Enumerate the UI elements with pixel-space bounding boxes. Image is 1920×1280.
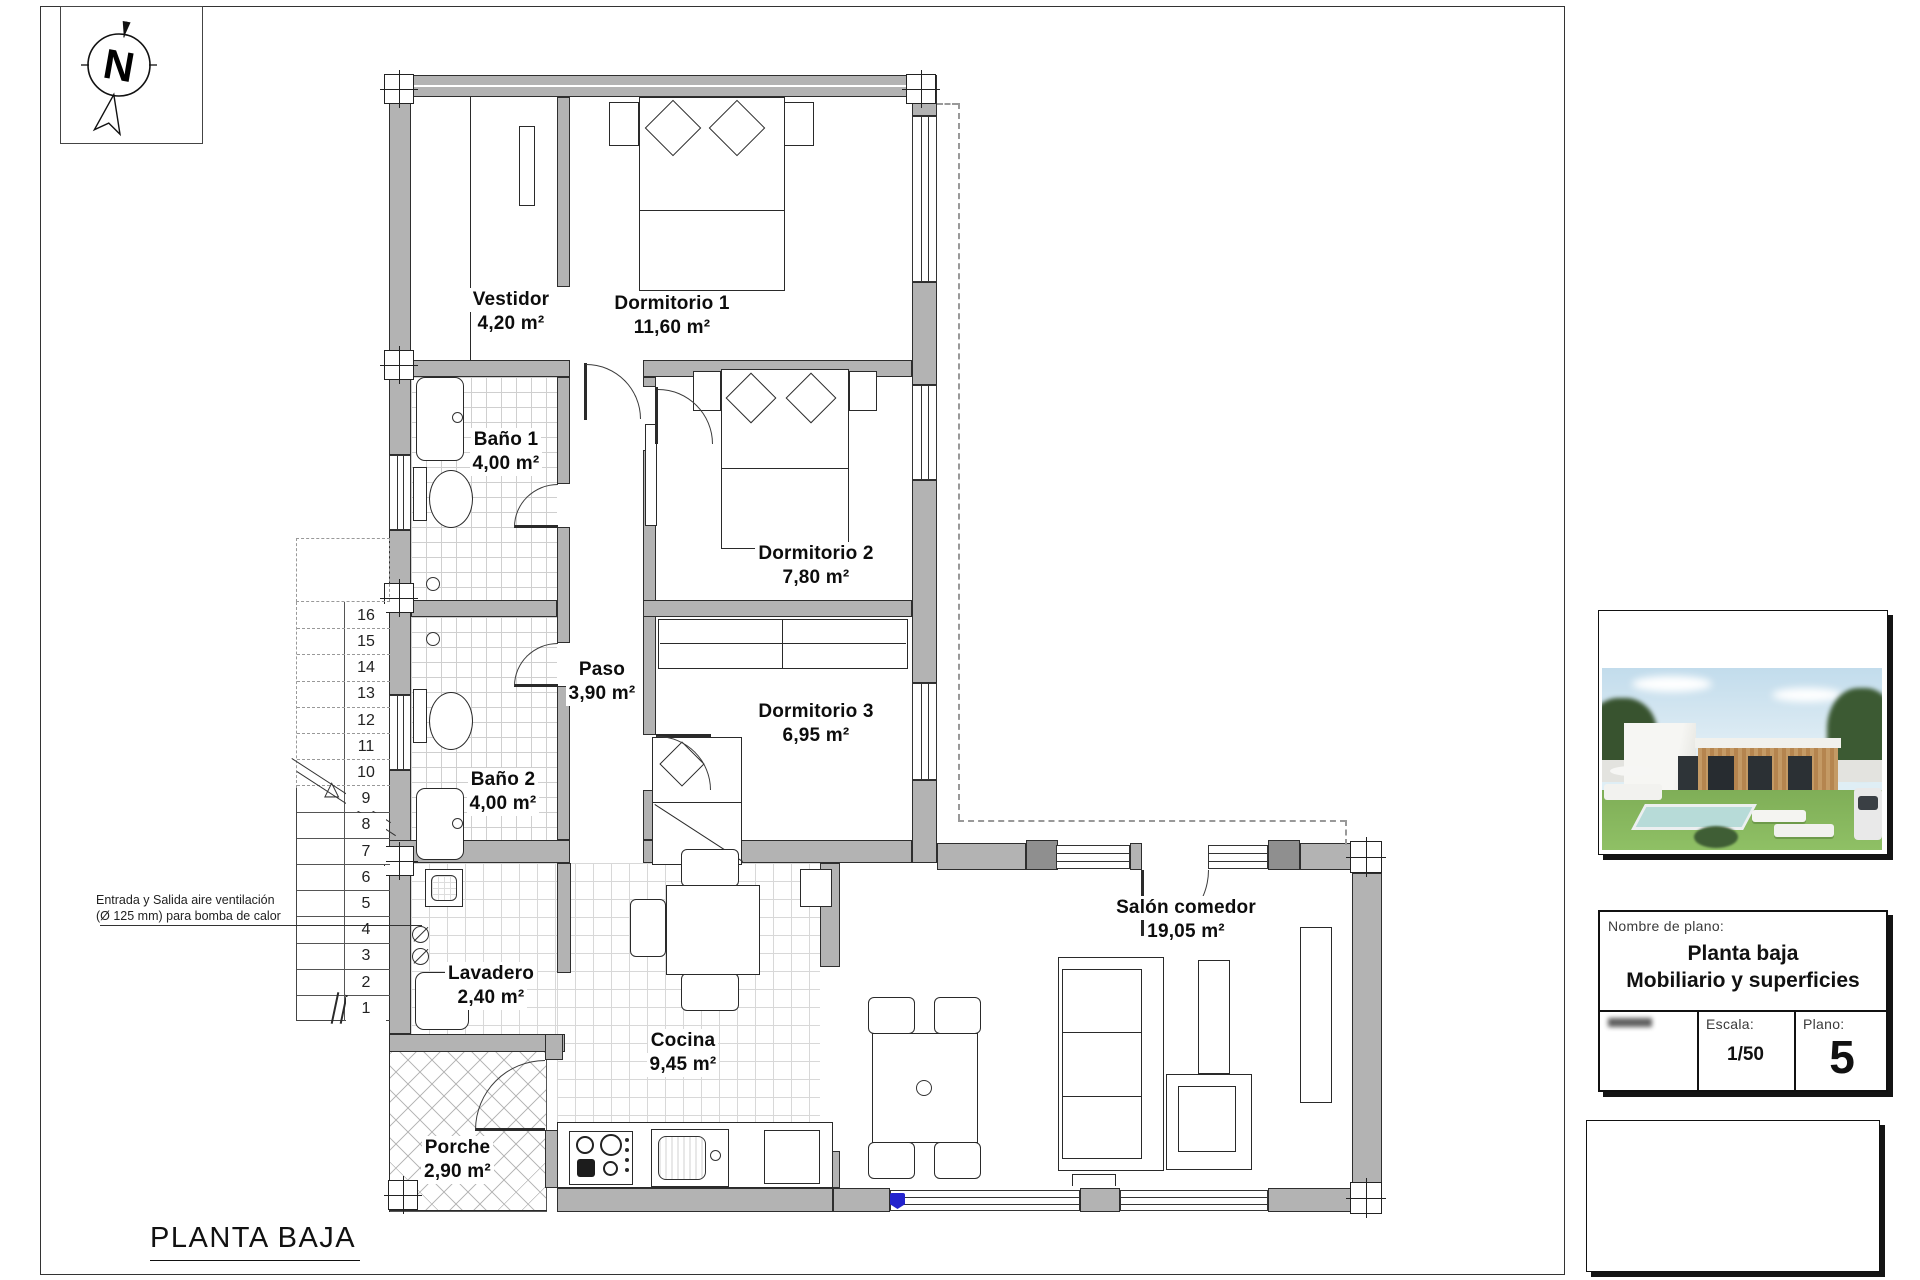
stair-tread-line [297, 759, 390, 760]
toilet-bowl [429, 470, 473, 528]
stove-burner [600, 1134, 622, 1156]
console-table [1198, 960, 1230, 1074]
stair-number: 13 [346, 682, 386, 706]
kitchen-faucet [710, 1150, 721, 1161]
stair-tread-line [297, 890, 390, 891]
counter-unit [764, 1130, 820, 1184]
wall-segment [557, 686, 570, 840]
wall-segment [411, 600, 557, 617]
wall-pillar [1268, 840, 1300, 870]
dashed-outline [958, 820, 1346, 822]
wall-segment [389, 97, 411, 455]
window [890, 1190, 1080, 1211]
window [389, 695, 411, 770]
stair-tread-line [297, 785, 390, 786]
sink-tap [452, 818, 463, 829]
plano-value: 5 [1794, 1030, 1890, 1084]
stove-knob [625, 1168, 629, 1172]
photo-window [1748, 756, 1772, 794]
stove-knob [625, 1158, 629, 1162]
room-area: 7,80 m² [780, 566, 853, 590]
photo-cloud [1632, 676, 1712, 692]
table-centerpiece [916, 1080, 932, 1096]
wall-segment [557, 1188, 833, 1212]
stair-number: 11 [346, 735, 386, 759]
title-block-divider [1600, 1010, 1886, 1012]
escala-label: Escala: [1706, 1016, 1754, 1032]
stove-burner-square [577, 1159, 595, 1177]
annotation-line: (Ø 125 mm) para bomba de calor [96, 909, 281, 923]
room-area: 11,60 m² [631, 316, 714, 340]
stairs-landing-dashed [296, 538, 390, 602]
stair-number: 3 [346, 944, 386, 968]
photo-car-window [1858, 796, 1878, 810]
nightstand [784, 102, 814, 146]
bed-fold-line [653, 802, 741, 803]
stair-number: 15 [346, 630, 386, 654]
dashed-outline [1345, 820, 1347, 845]
window [389, 455, 411, 530]
stair-tread-line [297, 864, 390, 865]
dashed-outline [937, 103, 958, 105]
photo-outdoor-sofa [1604, 784, 1662, 800]
stair-tread-line [297, 707, 390, 708]
room-area: 4,00 m² [470, 452, 543, 476]
photo-window [1788, 756, 1812, 794]
room-name: Baño 1 [471, 428, 542, 452]
room-label-bano2: Baño 2 4,00 m² [423, 768, 583, 816]
stair-number: 16 [346, 604, 386, 628]
room-label-dormitorio2: Dormitorio 2 7,80 m² [736, 542, 896, 590]
column-marker [1350, 1182, 1382, 1214]
bed-fold-line [722, 468, 848, 469]
washing-machine-drum [431, 875, 457, 901]
photo-lounger [1752, 810, 1806, 822]
column-marker [388, 1180, 418, 1210]
room-area: 3,90 m² [566, 682, 639, 706]
room-area: 4,00 m² [467, 792, 540, 816]
ventilation-annotation: Entrada y Salida aire ventilación (Ø 125… [96, 892, 316, 924]
stair-number: 4 [346, 918, 386, 942]
stair-tread-line [297, 733, 390, 734]
plan-title: PLANTA BAJA [150, 1222, 360, 1261]
room-area: 4,20 m² [475, 312, 548, 336]
room-label-bano1: Baño 1 4,00 m² [426, 428, 586, 476]
wall-pillar [1026, 840, 1058, 870]
stair-tread-line [297, 969, 390, 970]
kitchen-chair [681, 973, 739, 1011]
dining-chair [868, 1142, 915, 1179]
toilet-bowl [429, 692, 473, 750]
room-area: 6,95 m² [780, 724, 853, 748]
stair-number: 6 [346, 866, 386, 890]
window [1120, 1190, 1268, 1211]
annotation-line: Entrada y Salida aire ventilación [96, 893, 275, 907]
stair-tread-line [297, 838, 390, 839]
wall-segment [937, 843, 1026, 870]
north-arrow-box: N [60, 6, 203, 144]
room-name: Paso [576, 658, 628, 682]
armchair-seat [1178, 1086, 1236, 1152]
bed-fold-line [640, 210, 784, 211]
vestidor-shelf [519, 126, 535, 206]
stair-number: 14 [346, 656, 386, 680]
wall-segment [411, 360, 570, 377]
wardrobe-rail [660, 643, 906, 644]
kitchen-sink-basin [658, 1136, 706, 1180]
dining-chair [868, 997, 915, 1034]
column-marker [906, 74, 936, 104]
sofa-cushion-line [1063, 1032, 1141, 1033]
room-name: Porche [422, 1136, 494, 1160]
wall-segment [912, 480, 937, 683]
wall-segment [557, 863, 571, 973]
wall-segment [1300, 843, 1352, 870]
room-label-cocina: Cocina 9,45 m² [603, 1029, 763, 1077]
stair-number: 9 [346, 787, 386, 811]
room-name: Vestidor [470, 288, 553, 312]
wardrobe-divider [782, 620, 783, 668]
wall-segment [389, 770, 411, 1034]
photo-wood-parapet [1695, 738, 1841, 748]
nightstand [849, 371, 877, 411]
room-name: Dormitorio 1 [611, 292, 732, 316]
photo-pool [1631, 804, 1757, 830]
stair-tread-line [297, 628, 390, 629]
stair-number: 1 [346, 997, 386, 1021]
window [912, 683, 937, 780]
kitchen-chair [630, 899, 666, 957]
window [1056, 845, 1130, 869]
room-label-paso: Paso 3,90 m² [537, 658, 667, 706]
plan-name-line2: Mobiliario y superficies [1626, 969, 1859, 992]
stove-burner [576, 1136, 594, 1154]
wall-segment [643, 600, 912, 617]
stair-number: 7 [346, 840, 386, 864]
stair-number: 10 [346, 761, 386, 785]
notes-box [1586, 1120, 1880, 1272]
stair-number: 8 [346, 813, 386, 837]
dashed-outline [958, 103, 960, 820]
stairs-up-arrow: △ [324, 776, 339, 801]
render-photo-box [1598, 610, 1888, 855]
sink-tap [452, 412, 463, 423]
room-name: Salón comedor [1113, 896, 1259, 920]
dining-chair [934, 1142, 981, 1179]
room-area: 9,45 m² [647, 1053, 720, 1077]
stove-knob [625, 1148, 629, 1152]
photo-lounger [1774, 824, 1834, 837]
room-area: 19,05 m² [1144, 920, 1228, 944]
stair-tread-line [297, 995, 390, 996]
room-area: 2,90 m² [421, 1160, 494, 1184]
wall-segment [389, 75, 937, 97]
ventilation-symbol [412, 926, 429, 943]
column-marker [384, 350, 414, 380]
room-area: 2,40 m² [455, 986, 528, 1010]
room-name: Dormitorio 3 [755, 700, 876, 724]
redacted-label [1608, 1018, 1652, 1027]
sofa-cushion-line [1063, 1096, 1141, 1097]
tv-unit [1300, 927, 1332, 1103]
fridge [800, 869, 832, 907]
porch-edge [389, 1210, 547, 1211]
window [912, 385, 937, 480]
stair-number: 5 [346, 892, 386, 916]
kitchen-chair [681, 849, 739, 887]
room-label-dormitorio3: Dormitorio 3 6,95 m² [736, 700, 896, 748]
plan-title-text: PLANTA BAJA [150, 1222, 360, 1261]
house-render-photo [1602, 668, 1882, 850]
photo-bush [1694, 826, 1738, 848]
stove-burner [603, 1161, 618, 1176]
column-marker [1350, 841, 1382, 873]
column-marker [384, 74, 414, 104]
plan-name-line1: Planta baja [1688, 942, 1799, 965]
annotation-leader-line [100, 925, 422, 926]
north-compass-icon: N [61, 7, 204, 145]
floor-drain [426, 632, 440, 646]
wall-segment [1352, 873, 1382, 1184]
wall-segment [1268, 1188, 1352, 1212]
floor-drain [426, 577, 440, 591]
plan-name: Planta baja Mobiliario y superficies [1600, 940, 1886, 994]
wardrobe [658, 619, 908, 669]
stove-knob [625, 1138, 629, 1142]
escala-value: 1/50 [1697, 1044, 1794, 1066]
stair-number: 12 [346, 709, 386, 733]
title-block-name-label: Nombre de plano: [1608, 918, 1724, 934]
room-label-vestidor: Vestidor 4,20 m² [431, 288, 591, 336]
stair-tread-line [297, 654, 390, 655]
room-label-dormitorio1: Dormitorio 1 11,60 m² [592, 292, 752, 340]
window [1208, 845, 1268, 869]
wall-segment [545, 1034, 563, 1060]
photo-window [1708, 756, 1734, 794]
photo-cloud [1772, 688, 1842, 702]
toilet-tank [413, 689, 427, 743]
wall-segment [833, 1188, 890, 1212]
wall-segment [643, 377, 656, 387]
room-label-lavadero: Lavadero 2,40 m² [411, 962, 571, 1010]
room-label-salon: Salón comedor 19,05 m² [1086, 896, 1286, 944]
photo-umbrella [1610, 766, 1654, 776]
room-name: Baño 2 [468, 768, 539, 792]
title-block: Nombre de plano: Planta baja Mobiliario … [1598, 910, 1888, 1092]
room-name: Cocina [648, 1029, 719, 1053]
wall-segment [1080, 1188, 1120, 1212]
nightstand [609, 102, 639, 146]
stair-number: 2 [346, 971, 386, 995]
drawing-sheet: N [0, 0, 1920, 1280]
wall-segment [1130, 843, 1142, 870]
sofa-seat [1062, 969, 1142, 1159]
wall-segment [912, 282, 937, 385]
window [912, 116, 937, 282]
toilet-tank [413, 467, 427, 521]
side-table [1072, 1174, 1116, 1186]
kitchen-table [666, 885, 760, 975]
room-name: Dormitorio 2 [755, 542, 876, 566]
wall-segment [912, 780, 937, 863]
wall-segment [557, 97, 570, 287]
north-label: N [100, 40, 138, 92]
dining-chair [934, 997, 981, 1034]
wall-segment [557, 527, 570, 643]
room-name: Lavadero [445, 962, 537, 986]
wall-segment [389, 1034, 565, 1052]
room-label-porche: Porche 2,90 m² [380, 1136, 535, 1184]
